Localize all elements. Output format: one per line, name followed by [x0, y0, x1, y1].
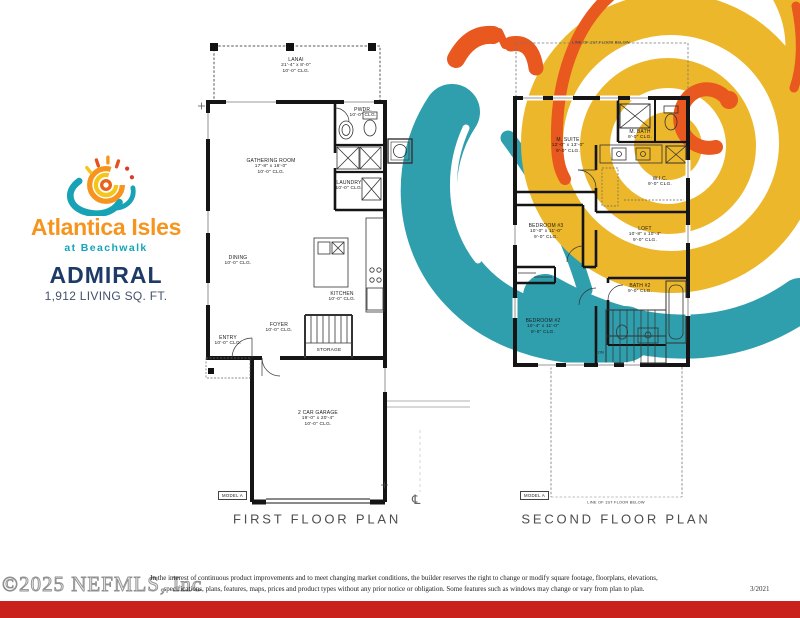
room-label-bedroom2: BEDROOM #2 10'-4" x 11'-0" 9'-0" CLG.	[526, 318, 561, 336]
revision-date: 3/2021	[750, 585, 769, 593]
room-label-lanai: LANAI 21'-4" x 8'-0" 10'-0" CLG.	[281, 57, 311, 75]
first-floor-plan-drawing	[198, 43, 470, 503]
room-clg: 10'-0" CLG.	[350, 113, 377, 119]
room-label-laundry: LAUNDRY 10'-0" CLG.	[336, 180, 363, 192]
living-area: 1,912 LIVING SQ. FT.	[0, 289, 212, 303]
room-label-pwdr: PWDR. 10'-0" CLG.	[350, 107, 377, 119]
second-floor-stairs	[606, 310, 666, 363]
room-clg: 9'-0" CLG.	[552, 149, 585, 155]
footer-red-bar	[0, 601, 800, 618]
room-clg: 9'-0" CLG.	[648, 182, 672, 188]
plan-name: ADMIRAL	[0, 262, 212, 289]
first-floor-doors	[232, 108, 349, 376]
room-label-bedroom3: BEDROOM #3 10'-0" x 11'-0" 9'-0" CLG.	[529, 223, 564, 241]
room-clg: 9'-0" CLG.	[526, 330, 561, 336]
brand-name: Atlantica Isles	[0, 214, 212, 241]
floor-line-note-bottom: LINE OF 1ST FLOOR BELOW	[587, 500, 645, 505]
room-name: STORAGE	[317, 348, 342, 354]
room-clg: 10'-0" CLG.	[225, 261, 252, 267]
room-label-m-bath: M. BATH 9'-0" CLG.	[628, 129, 652, 141]
stairs-dn-label: DN	[598, 350, 604, 355]
second-floor-caption: SECOND FLOOR PLAN	[521, 512, 710, 527]
room-label-entry: ENTRY 10'-0" CLG.	[215, 335, 242, 347]
disclaimer-text: In the interest of continuous product im…	[146, 573, 662, 594]
room-clg: 10'-0" CLG.	[215, 341, 242, 347]
flyer-page: Atlantica Isles at Beachwalk ADMIRAL 1,9…	[0, 0, 800, 618]
garage-door	[266, 499, 370, 503]
room-label-foyer: FOYER 10'-0" CLG.	[266, 322, 293, 334]
room-clg: 10'-0" CLG.	[266, 328, 293, 334]
room-clg: 10'-0" CLG.	[298, 422, 338, 428]
model-label-first: MODEL A	[218, 491, 247, 500]
disclaimer-line2: specifications, plans, features, maps, p…	[146, 584, 662, 595]
room-clg: 9'-0" CLG.	[629, 238, 662, 244]
first-floor-below-outline	[516, 43, 688, 497]
entry-porch	[206, 358, 250, 378]
disclaimer-line1: In the interest of continuous product im…	[146, 573, 662, 584]
room-label-garage: 2 CAR GARAGE 19'-0" x 20'-4" 10'-0" CLG.	[298, 410, 338, 428]
centerline-symbol: ℄	[412, 493, 420, 508]
room-label-kitchen: KITCHEN 10'-0" CLG.	[329, 291, 356, 303]
logo-sun-wave-icon	[58, 152, 154, 216]
first-floor-windows	[206, 100, 388, 393]
room-label-dining: DINING 10'-0" CLG.	[225, 255, 252, 267]
model-label-second: MODEL A	[520, 491, 549, 500]
second-floor-plan-drawing	[513, 43, 691, 497]
room-clg: 9'-0" CLG.	[628, 135, 652, 141]
room-label-loft: LOFT 10'-8" x 10'-4" 9'-0" CLG.	[629, 226, 662, 244]
room-label-bath2: BATH #2 9'-0" CLG.	[628, 283, 652, 295]
first-floor-caption: FIRST FLOOR PLAN	[233, 512, 401, 527]
room-label-wic: W.I.C. 9'-0" CLG.	[648, 176, 672, 188]
room-label-storage: STORAGE	[317, 348, 342, 354]
room-clg: 9'-0" CLG.	[529, 235, 564, 241]
room-label-m-suite: M. SUITE 12'-0" x 13'-0" 9'-0" CLG.	[552, 137, 585, 155]
equipment-pad	[388, 139, 412, 163]
room-clg: 10'-0" CLG.	[336, 186, 363, 192]
room-clg: 10'-0" CLG.	[246, 170, 295, 176]
bedroom2-closet	[518, 273, 552, 277]
floor-line-note-top: LINE OF 1ST FLOOR BELOW	[572, 40, 630, 45]
brand-tagline: at Beachwalk	[0, 242, 212, 254]
room-clg: 10'-0" CLG.	[281, 69, 311, 75]
room-label-gathering: GATHERING ROOM 17'-8" x 16'-0" 10'-0" CL…	[246, 158, 295, 176]
room-clg: 10'-0" CLG.	[329, 297, 356, 303]
room-clg: 9'-0" CLG.	[628, 289, 652, 295]
